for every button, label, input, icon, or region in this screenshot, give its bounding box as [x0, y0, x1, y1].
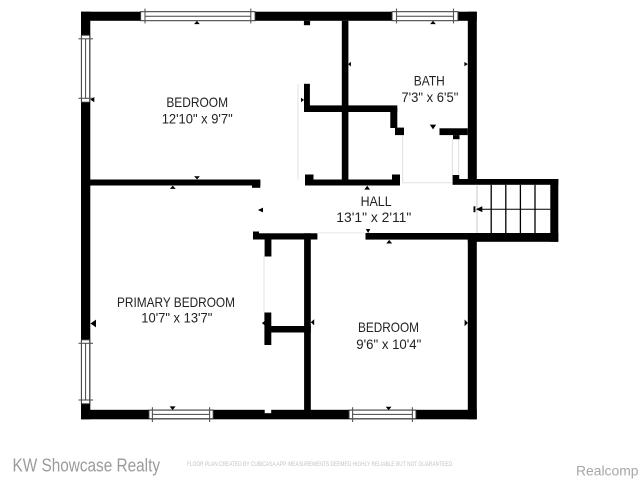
- svg-text:10'7" x 13'7": 10'7" x 13'7": [141, 310, 212, 326]
- svg-text:HALL: HALL: [361, 193, 392, 209]
- svg-text:BEDROOM: BEDROOM: [358, 319, 419, 335]
- svg-text:12'10" x 9'7": 12'10" x 9'7": [162, 110, 233, 126]
- svg-text:Realcomp: Realcomp: [576, 463, 639, 478]
- svg-text:KW Showcase Realty: KW Showcase Realty: [13, 455, 161, 476]
- svg-text:PRIMARY BEDROOM: PRIMARY BEDROOM: [117, 294, 235, 310]
- svg-text:13'1" x 2'11": 13'1" x 2'11": [336, 209, 411, 225]
- svg-text:BEDROOM: BEDROOM: [166, 94, 228, 110]
- svg-text:FLOOR PLAN CREATED BY CUBICASA: FLOOR PLAN CREATED BY CUBICASA APP. MEAS…: [187, 461, 454, 468]
- svg-text:9'6" x 10'4": 9'6" x 10'4": [356, 336, 421, 352]
- svg-text:BATH: BATH: [414, 73, 445, 89]
- svg-text:7'3" x 6'5": 7'3" x 6'5": [401, 89, 458, 105]
